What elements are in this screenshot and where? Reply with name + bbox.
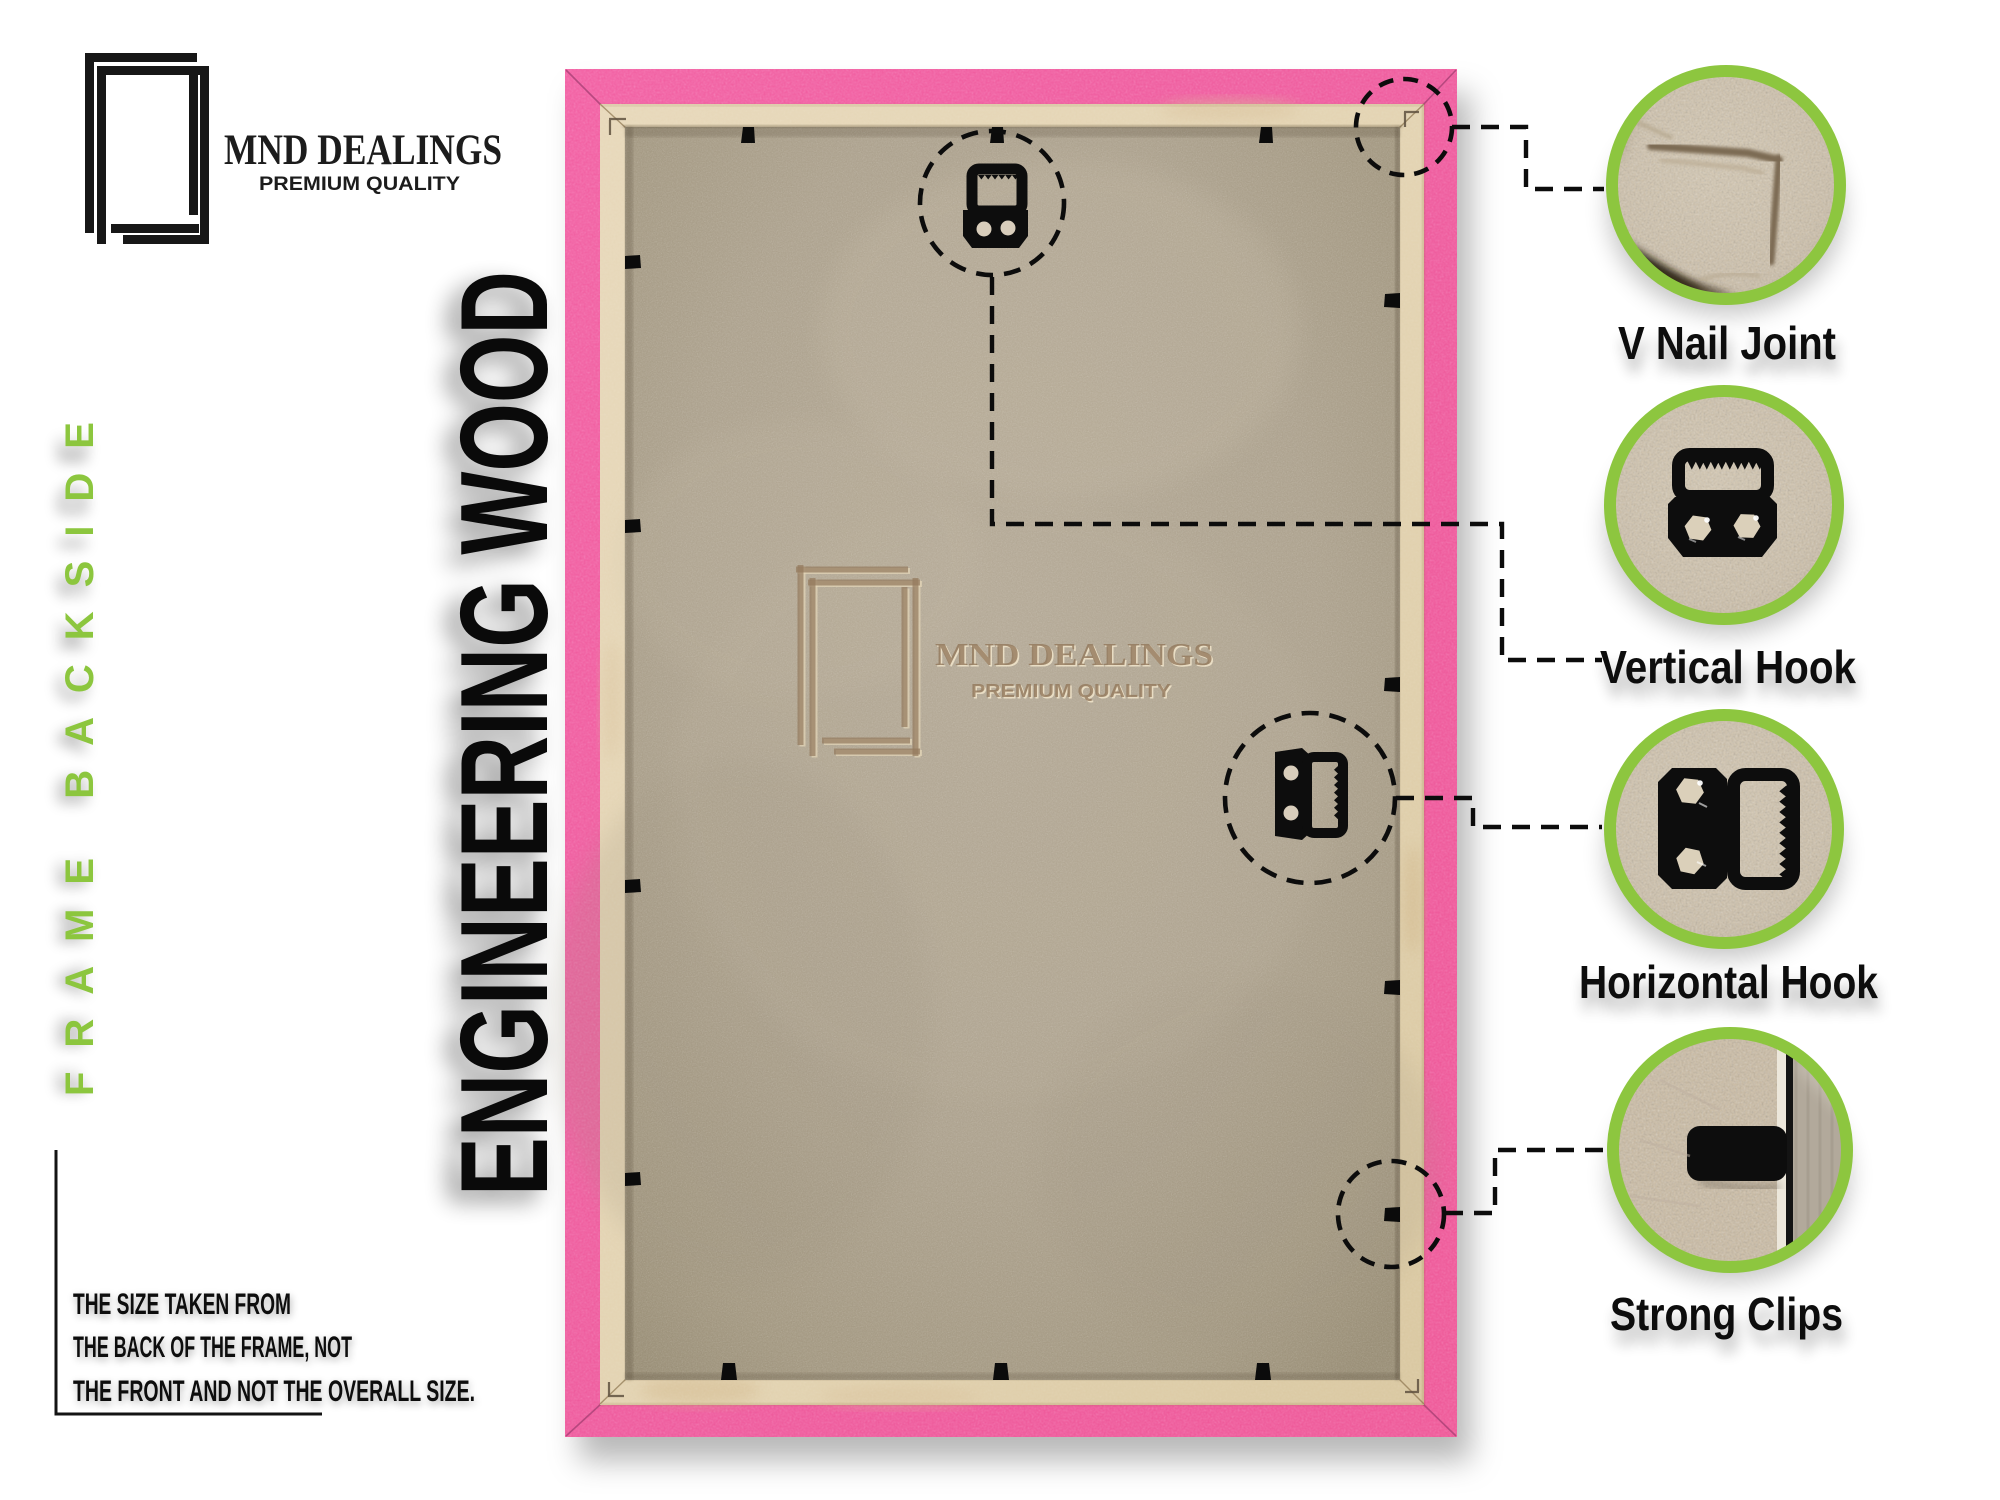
svg-text:PREMIUM QUALITY: PREMIUM QUALITY (259, 174, 460, 195)
svg-text:PREMIUM QUALITY: PREMIUM QUALITY (971, 681, 1171, 701)
svg-text:Strong Clips: Strong Clips (1610, 1288, 1843, 1340)
svg-text:Vertical Hook: Vertical Hook (1600, 641, 1856, 693)
svg-text:MND DEALINGS: MND DEALINGS (935, 636, 1213, 672)
svg-text:THE FRONT AND NOT THE OVERALL: THE FRONT AND NOT THE OVERALL SIZE. (73, 1375, 475, 1408)
svg-text:THE SIZE TAKEN FROM: THE SIZE TAKEN FROM (73, 1288, 291, 1321)
svg-text:Horizontal Hook: Horizontal Hook (1579, 956, 1878, 1008)
svg-text:THE BACK OF THE FRAME, NOT: THE BACK OF THE FRAME, NOT (73, 1331, 352, 1364)
svg-text:V Nail Joint: V Nail Joint (1618, 317, 1836, 369)
svg-text:MND DEALINGS: MND DEALINGS (224, 127, 502, 174)
svg-text:ENGINEERING WOOD: ENGINEERING WOOD (436, 271, 574, 1196)
